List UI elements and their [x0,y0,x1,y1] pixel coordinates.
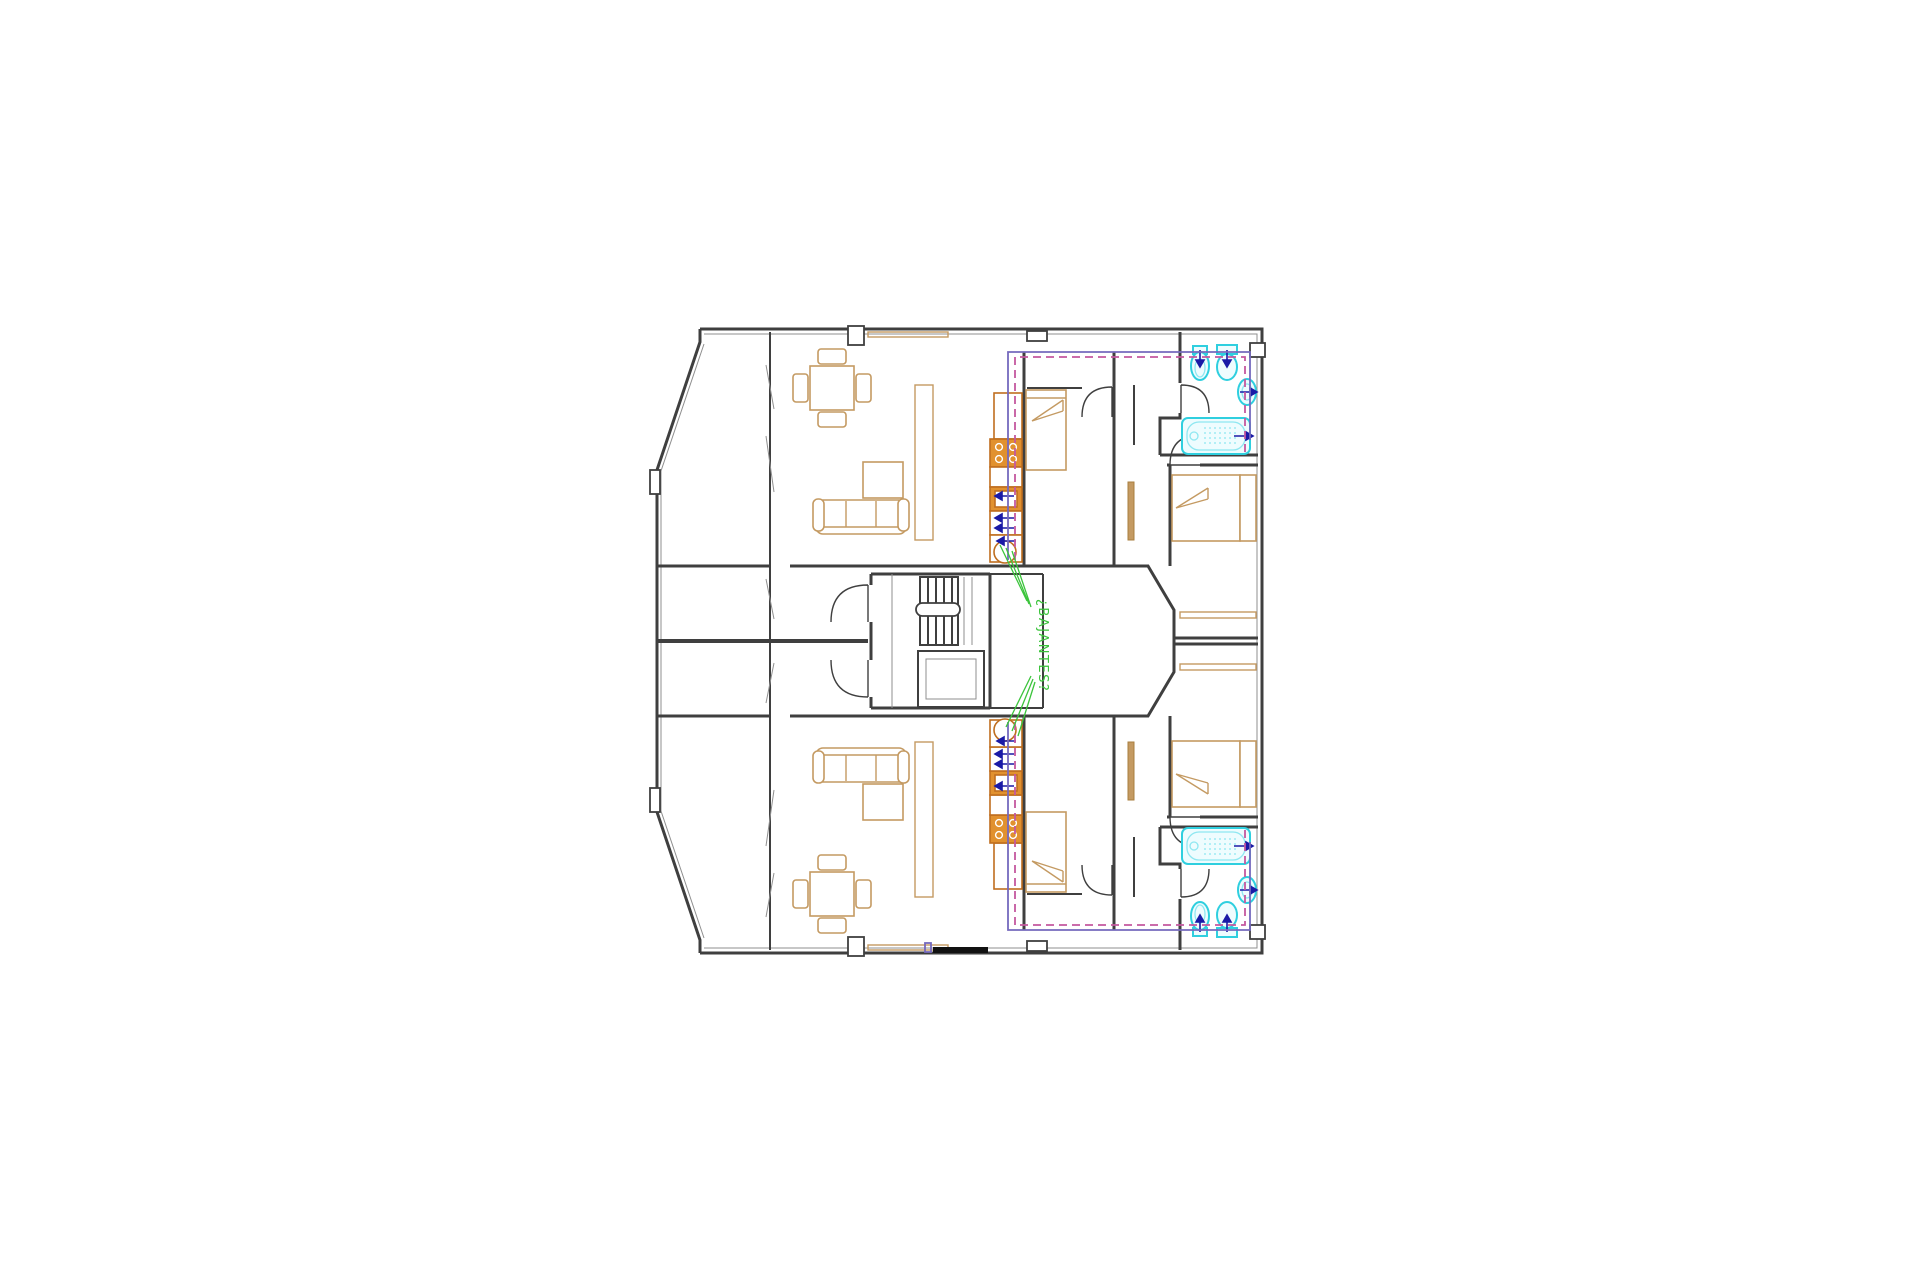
bathroom-door [1181,385,1209,413]
single-bed [1026,390,1066,470]
double-bed [1172,475,1256,541]
bajantes-label: ¿BAJANTES? [1035,599,1050,692]
dining-table-with-chairs [793,349,871,427]
floor-plan-canvas: ¿BAJANTES? [0,0,1920,1280]
stair-handrail [916,603,960,616]
wall-fill-segment [933,947,988,953]
headboard [1240,475,1256,541]
facade-notch [1027,331,1047,341]
kitchen-units [990,393,1022,563]
wardrobe [1128,482,1134,540]
stair-core [871,574,1043,708]
elevator [918,651,984,707]
stairs [916,577,972,645]
living-dining-furniture [793,349,933,540]
apartment-unit-mirrored [650,641,1265,956]
wardrobe-low [1180,612,1256,618]
shelf-partition [915,385,933,540]
facade-pier [650,470,660,494]
cooktop [990,439,1022,467]
kitchen-cabinet [990,467,1022,487]
kitchen-appliance-unit [990,511,1022,535]
coffee-table [863,462,903,498]
window-block [848,326,864,345]
entrance-door [831,585,868,622]
sofa [813,499,909,534]
service-block [1250,343,1265,357]
floor-plan-drawing: ¿BAJANTES? [0,0,1920,1280]
kitchen-sink-unit [990,487,1022,511]
bedroom1-door [1082,387,1112,417]
